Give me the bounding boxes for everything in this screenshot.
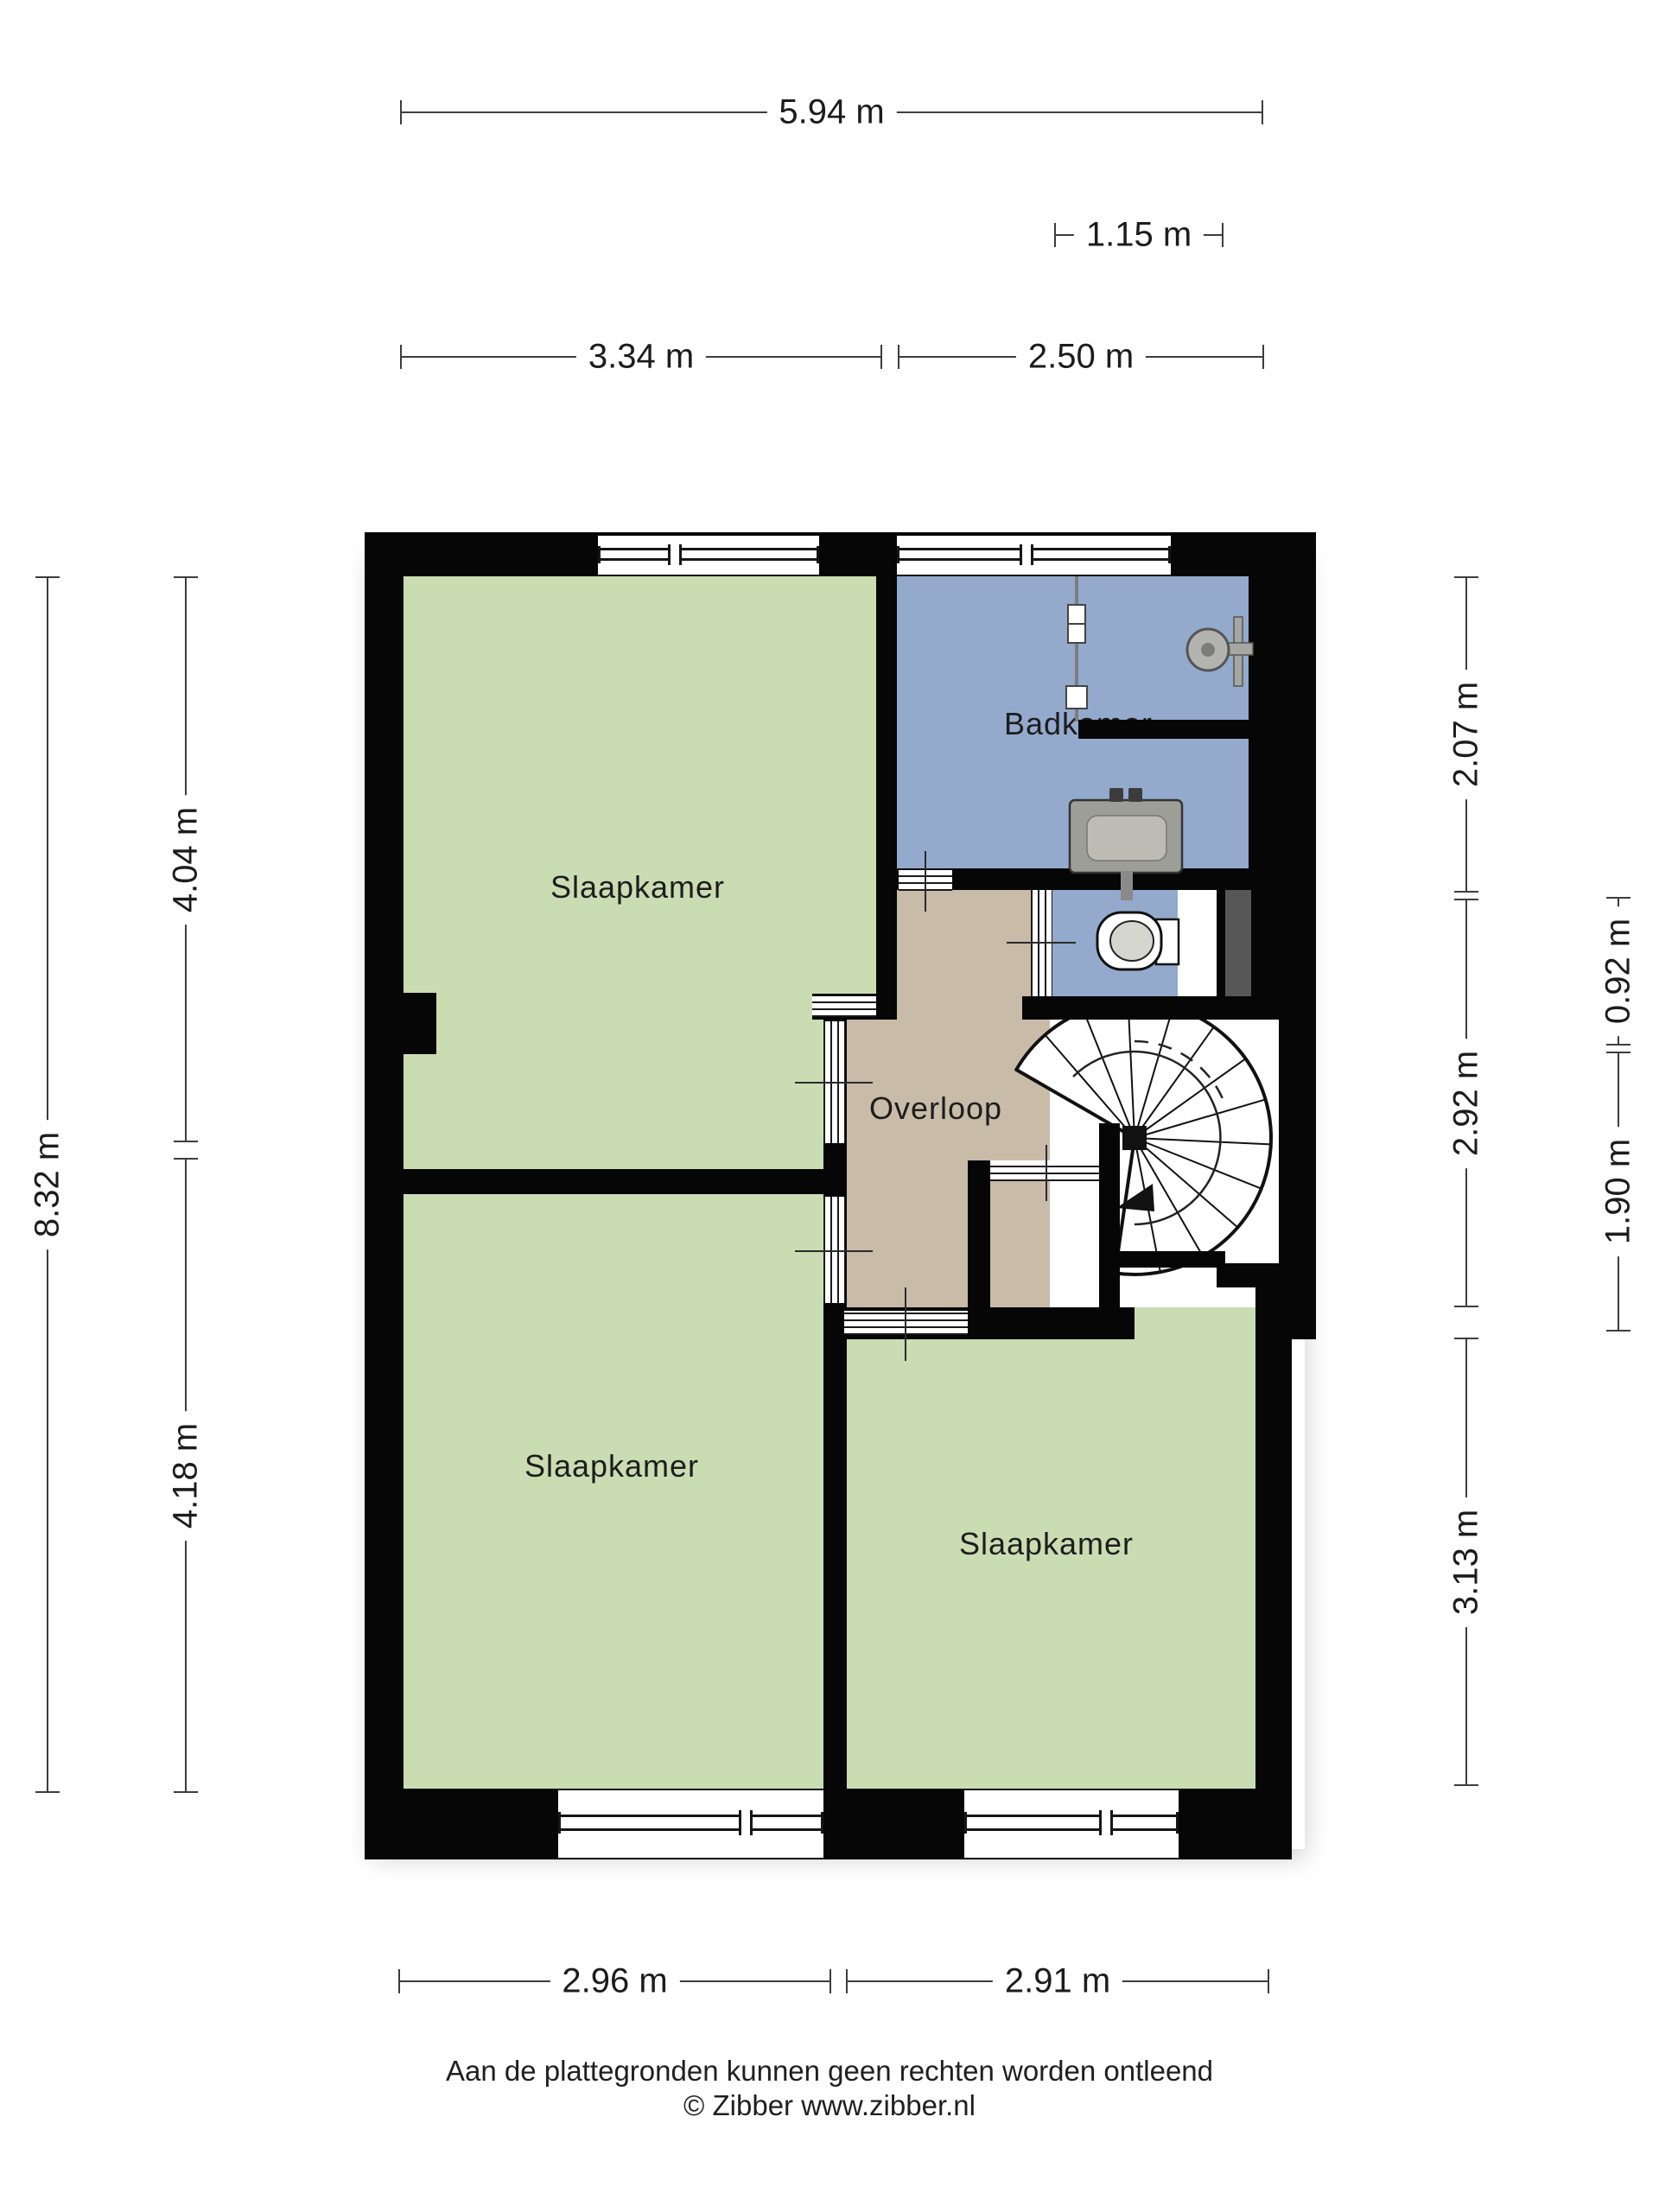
- room-landing-upper: [897, 890, 1031, 1020]
- wall-bedrooms-left-divider: [365, 1169, 847, 1194]
- window-glass-line: [897, 548, 1171, 550]
- wall-left: [365, 532, 404, 1859]
- window-end: [897, 546, 899, 563]
- door-swing-tick: [925, 851, 926, 912]
- wall-understair-right: [1099, 1123, 1120, 1307]
- footer-credit: © Zibber www.zibber.nl: [0, 2089, 1659, 2122]
- window-glass-line: [558, 1815, 823, 1817]
- door-landing-step: [812, 996, 876, 1017]
- dim-left-upper: 4.04 m: [174, 576, 198, 1142]
- dim-right-middle: 2.92 m: [1454, 899, 1478, 1307]
- window-end: [817, 546, 819, 563]
- window-end: [821, 1812, 823, 1834]
- wall-right-toilet-row: [1251, 890, 1279, 1020]
- dim-top-left: 3.34 m: [400, 345, 882, 369]
- door-swing-tick: [1007, 942, 1076, 944]
- window-mullion: [1020, 544, 1033, 565]
- window-glass-line: [897, 558, 1171, 561]
- window-bathroom: [897, 536, 1171, 575]
- dim-left-lower: 4.18 m: [174, 1158, 198, 1793]
- floorplan-page: Badkamer: [0, 0, 1659, 2212]
- window-mullion: [1099, 1810, 1113, 1835]
- window-bedroom-br: [964, 1790, 1179, 1858]
- dim-right-inner-lower: 1.90 m: [1606, 1052, 1630, 1332]
- wall-toilet-bottom: [1022, 996, 1279, 1020]
- door-swing-tick: [1046, 1145, 1047, 1201]
- wall-right-bathroom-thick: [1249, 532, 1279, 890]
- window-end: [558, 1812, 561, 1834]
- window-end: [964, 1812, 967, 1834]
- room-label-bedroom-bl: Slaapkamer: [524, 1448, 699, 1484]
- window-bedroom-tl: [598, 536, 819, 575]
- room-label-bedroom-br: Slaapkamer: [959, 1526, 1134, 1562]
- wall-toilet-right: [1217, 890, 1225, 996]
- room-bedroom-top-left-lower: [399, 994, 823, 1169]
- dim-right-lower: 3.13 m: [1454, 1338, 1478, 1786]
- door-swing-tick: [795, 1082, 873, 1084]
- window-mullion: [739, 1810, 753, 1835]
- stair-railing-bar: [990, 1160, 1099, 1181]
- door-swing-tick: [905, 1287, 906, 1361]
- footer-disclaimer: Aan de plattegronden kunnen geen rechten…: [0, 2055, 1659, 2088]
- room-bedroom-top-left: [399, 576, 876, 994]
- dim-top-total: 5.94 m: [400, 100, 1263, 124]
- dim-top-right: 2.50 m: [898, 345, 1264, 369]
- window-glass-line: [598, 548, 819, 550]
- toilet-door-opening: [1178, 890, 1217, 996]
- dim-left-total: 8.32 m: [35, 576, 60, 1793]
- room-bedroom-bottom-left: [399, 1194, 823, 1789]
- dim-top-small: 1.15 m: [1054, 223, 1224, 247]
- window-mullion: [668, 544, 682, 565]
- dim-right-upper: 2.07 m: [1454, 576, 1478, 893]
- door-swing-tick: [795, 1250, 873, 1252]
- dim-bottom-right: 2.91 m: [846, 1969, 1269, 1993]
- wall-stair-corner-notch: [1217, 1263, 1255, 1287]
- room-label-bedroom-tl: Slaapkamer: [550, 869, 725, 906]
- window-end: [1176, 1812, 1179, 1834]
- wall-bedroomtl-bathroom: [876, 576, 897, 1020]
- window-bedroom-bl: [558, 1790, 823, 1858]
- chimney-stub: [399, 993, 436, 1054]
- room-label-landing: Overloop: [869, 1090, 1002, 1127]
- duct-niche: [1225, 890, 1251, 996]
- wall-stair-south: [1120, 1251, 1225, 1268]
- wall-top: [365, 532, 1316, 576]
- window-glass-line: [558, 1828, 823, 1831]
- window-glass-line: [598, 558, 819, 561]
- room-bedroom-bottom-right: [847, 1339, 1255, 1789]
- wall-right-upper: [1279, 532, 1316, 1339]
- window-glass-line: [964, 1815, 1179, 1817]
- window-end: [598, 546, 601, 563]
- window-glass-line: [964, 1828, 1179, 1831]
- window-end: [1168, 546, 1171, 563]
- dim-right-inner-upper: 0.92 m: [1606, 897, 1630, 1046]
- wall-bathroom-inner: [1078, 720, 1249, 739]
- dim-bottom-left: 2.96 m: [398, 1969, 831, 1993]
- wall-understair-left: [968, 1160, 990, 1307]
- wall-right-lower: [1255, 1263, 1292, 1859]
